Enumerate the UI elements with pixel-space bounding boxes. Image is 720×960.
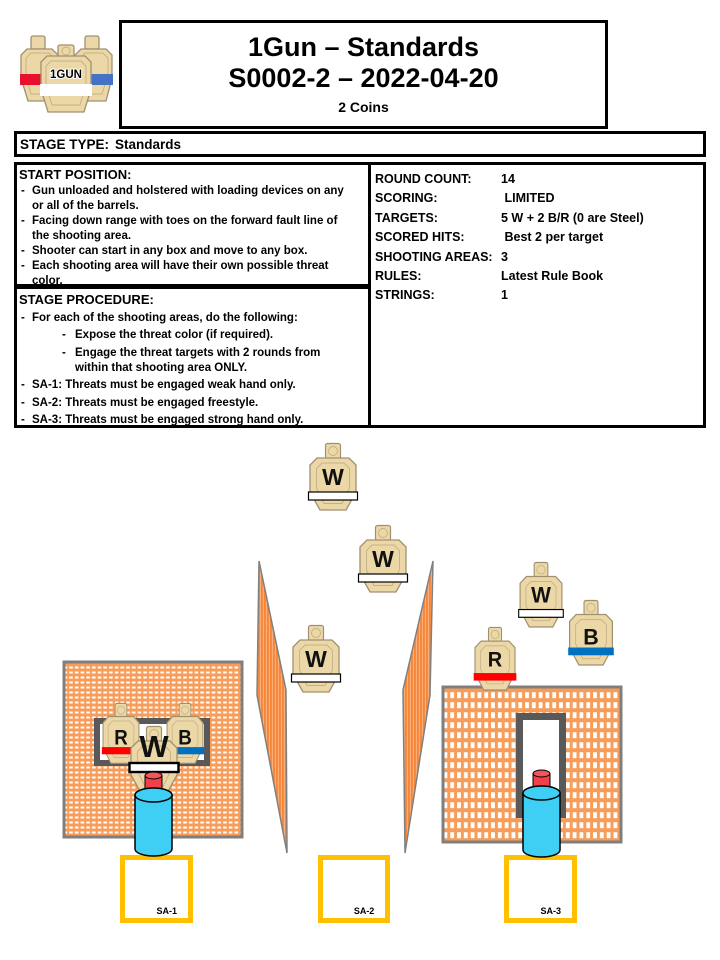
info-row: SCORING: LIMITED — [375, 189, 700, 208]
info-label: ROUND COUNT: — [375, 170, 501, 189]
bullet-text: SA-2: Threats must be engaged freestyle. — [32, 396, 366, 411]
info-label: STRINGS: — [375, 286, 501, 305]
club-logo: 1GUN — [18, 32, 116, 121]
bullet-item: -SA-3: Threats must be engaged strong ha… — [19, 413, 366, 428]
info-label: SCORING: — [375, 189, 501, 208]
bullet-item: -Gun unloaded and holstered with loading… — [19, 184, 366, 214]
bullet-dash: - — [19, 214, 32, 244]
bullet-text: Expose the threat color (if required). — [75, 328, 366, 343]
target-letter: W — [531, 582, 551, 608]
target-head — [534, 562, 548, 577]
target-letter: W — [322, 464, 344, 490]
info-row: STRINGS:1 — [375, 286, 700, 305]
shooting-area-label: SA-2 — [354, 906, 375, 916]
barrel-body — [523, 793, 560, 857]
info-label: RULES: — [375, 267, 501, 286]
target-head — [179, 703, 191, 717]
target-head — [115, 703, 127, 717]
info-row: SCORED HITS: Best 2 per target — [375, 228, 700, 247]
target-letter: B — [583, 624, 598, 650]
target-letter: B — [178, 726, 192, 750]
bullet-dash: - — [19, 396, 32, 411]
barrel-cap-top — [533, 770, 550, 777]
target-B: B — [568, 600, 614, 665]
stage-procedure-list: -For each of the shooting areas, do the … — [19, 311, 366, 429]
title-box: 1Gun – Standards S0002-2 – 2022-04-20 2 … — [119, 20, 608, 129]
bullet-text: Each shooting area will have their own p… — [32, 259, 366, 289]
bullet-item: -For each of the shooting areas, do the … — [19, 311, 366, 326]
info-value: 5 W + 2 B/R (0 are Steel) — [501, 209, 644, 228]
info-row: ROUND COUNT:14 — [375, 170, 700, 189]
info-value: 14 — [501, 170, 515, 189]
info-row: RULES:Latest Rule Book — [375, 267, 700, 286]
stage-procedure-heading: STAGE PROCEDURE: — [19, 292, 366, 308]
target-head — [309, 626, 324, 641]
info-label: SHOOTING AREAS: — [375, 248, 501, 267]
bullet-dash: - — [60, 346, 75, 376]
barrel-top — [523, 786, 560, 800]
bullet-item: -Shooter can start in any box and move t… — [19, 244, 366, 259]
barrel-top — [135, 788, 172, 802]
bullet-item: -Expose the threat color (if required). — [19, 328, 366, 343]
threat-color-band-white — [309, 492, 358, 500]
start-position-box: START POSITION: -Gun unloaded and holste… — [14, 162, 371, 287]
target-W: W — [359, 526, 408, 593]
bullet-dash: - — [19, 259, 32, 289]
target-letter: W — [305, 646, 327, 672]
bullet-item: -SA-2: Threats must be engaged freestyle… — [19, 396, 366, 411]
bullet-dash: - — [60, 328, 75, 343]
logo-targets-icon: 1GUN — [18, 32, 116, 116]
barrier-wall — [257, 561, 287, 853]
stage-type-label: STAGE TYPE: — [20, 137, 109, 152]
shooting-area-box: SA-2 — [321, 858, 388, 921]
target-head — [326, 444, 341, 459]
target-letter: R — [114, 726, 128, 750]
stage-info-box: ROUND COUNT:14SCORING: LIMITEDTARGETS:5 … — [368, 162, 706, 428]
bullet-dash: - — [19, 378, 32, 393]
shooting-area-box: SA-3 — [507, 858, 575, 921]
bullet-dash: - — [19, 311, 32, 326]
stage-diagram: WWWWBRRBWSA-1SA-2SA-3 — [0, 430, 720, 960]
barrier-wall — [403, 561, 433, 853]
bullet-text: Facing down range with toes on the forwa… — [32, 214, 366, 244]
info-value: 1 — [501, 286, 508, 305]
threat-color-band-white_outlined — [130, 763, 179, 772]
target-letter: R — [488, 648, 502, 672]
info-value: LIMITED — [501, 189, 554, 208]
info-value: Latest Rule Book — [501, 267, 603, 286]
threat-color-band-red — [474, 673, 517, 681]
info-value: Best 2 per target — [501, 228, 603, 247]
bullet-item: -SA-1: Threats must be engaged weak hand… — [19, 378, 366, 393]
page-title: 1Gun – Standards — [122, 32, 605, 63]
threat-color-band-white — [292, 674, 341, 682]
stage-procedure-box: STAGE PROCEDURE: -For each of the shooti… — [14, 286, 371, 428]
info-row: SHOOTING AREAS:3 — [375, 248, 700, 267]
start-position-list: -Gun unloaded and holstered with loading… — [19, 184, 366, 289]
shooting-area-label: SA-3 — [540, 906, 561, 916]
target-letter: W — [372, 546, 394, 572]
logo-white-band — [40, 84, 92, 96]
info-row: TARGETS:5 W + 2 B/R (0 are Steel) — [375, 209, 700, 228]
logo-text: 1GUN — [50, 69, 82, 81]
target-R: R — [474, 627, 517, 690]
bullet-text: Shooter can start in any box and move to… — [32, 244, 366, 259]
bullet-text: Engage the threat targets with 2 rounds … — [75, 346, 366, 376]
bullet-dash: - — [19, 244, 32, 259]
info-label: SCORED HITS: — [375, 228, 501, 247]
coins-subtitle: 2 Coins — [122, 97, 605, 117]
start-position-heading: START POSITION: — [19, 167, 366, 183]
info-label: TARGETS: — [375, 209, 501, 228]
threat-color-band-white — [359, 574, 408, 582]
bullet-text: Gun unloaded and holstered with loading … — [32, 184, 366, 214]
bullet-item: -Facing down range with toes on the forw… — [19, 214, 366, 244]
bullet-text: SA-3: Threats must be engaged strong han… — [32, 413, 366, 428]
barrel-body — [135, 795, 172, 856]
target-W: W — [292, 626, 341, 693]
stage-id-date: S0002-2 – 2022-04-20 — [122, 63, 605, 94]
bullet-text: SA-1: Threats must be engaged weak hand … — [32, 378, 366, 393]
target-W: W — [309, 444, 358, 511]
target-head — [584, 600, 598, 615]
target-head — [488, 627, 501, 641]
target-letter: W — [139, 729, 169, 764]
shooting-area-label: SA-1 — [156, 906, 177, 916]
stage-type-value: Standards — [115, 137, 181, 152]
info-value: 3 — [501, 248, 508, 267]
stage-type-bar: STAGE TYPE: Standards — [14, 131, 706, 157]
target-head — [376, 526, 391, 541]
threat-color-band-white — [519, 610, 564, 618]
target-W: W — [519, 562, 564, 627]
shooting-area-box: SA-1 — [123, 858, 191, 921]
bullet-dash: - — [19, 184, 32, 214]
bullet-dash: - — [19, 413, 32, 428]
barrel-cap-top — [145, 772, 162, 779]
bullet-text: For each of the shooting areas, do the f… — [32, 311, 366, 326]
bullet-item: -Each shooting area will have their own … — [19, 259, 366, 289]
bullet-item: -Engage the threat targets with 2 rounds… — [19, 346, 366, 376]
